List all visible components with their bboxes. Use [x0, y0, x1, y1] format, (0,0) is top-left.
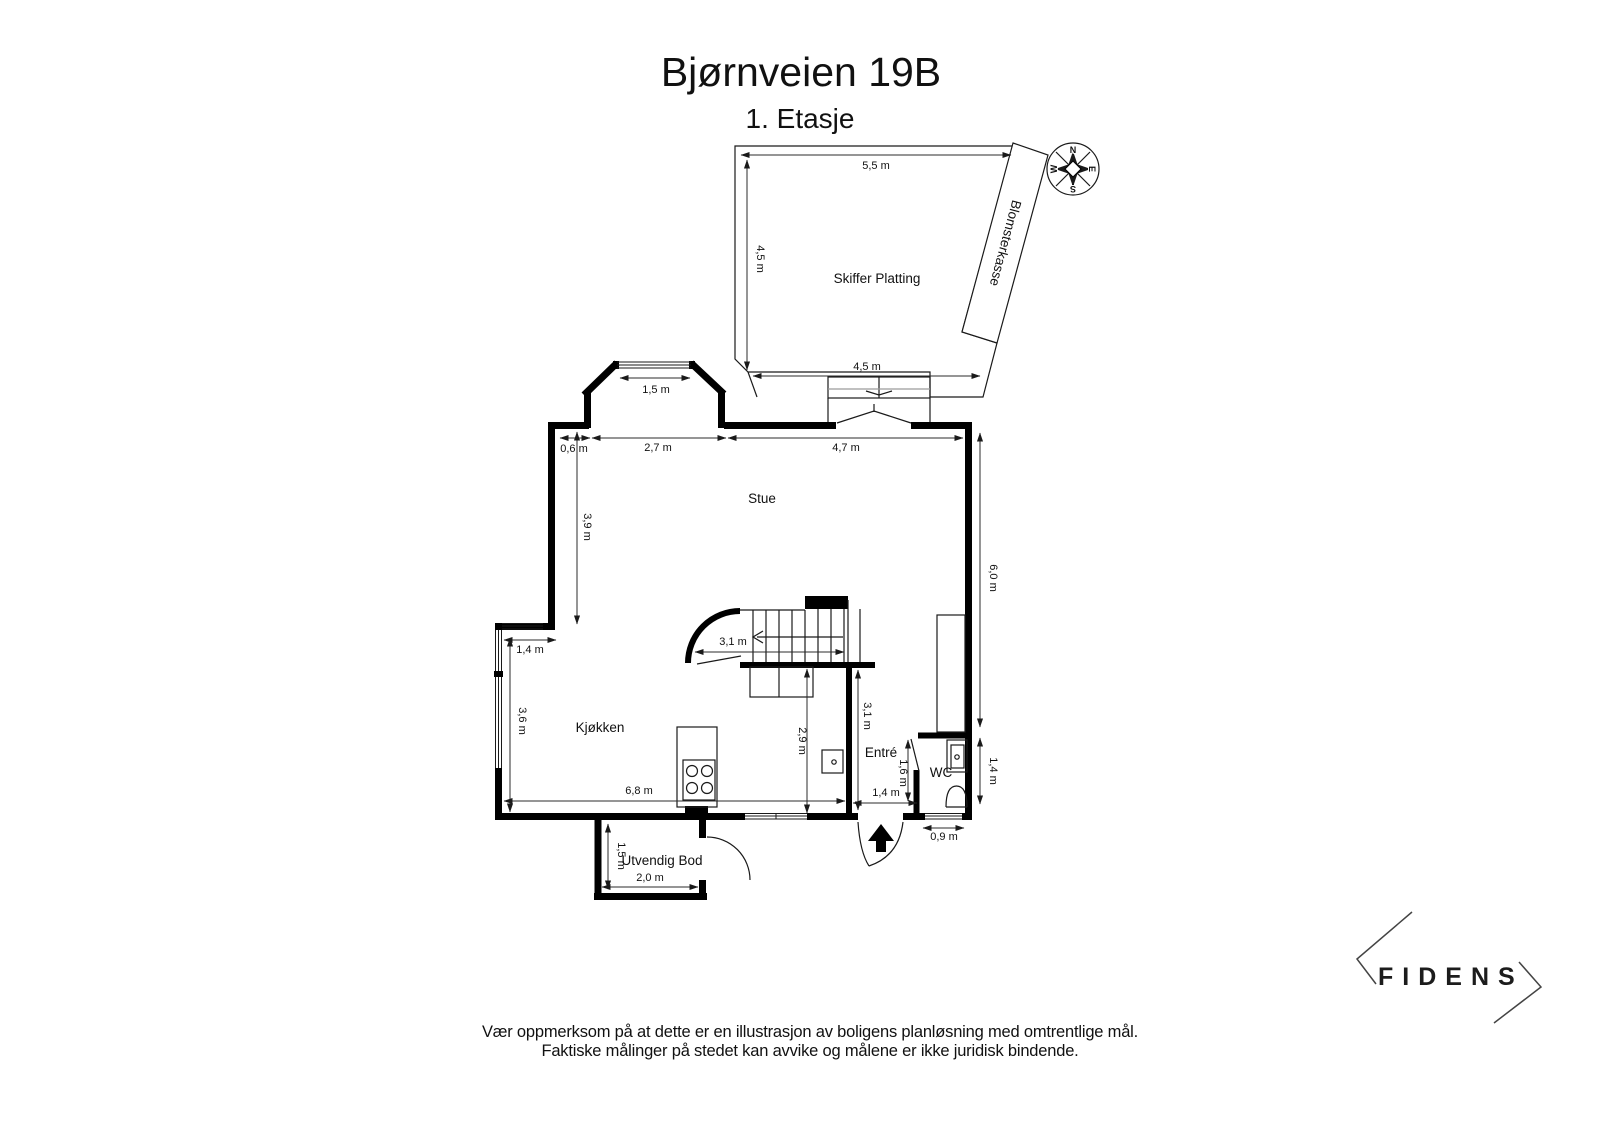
kitchen-cabinet — [822, 750, 843, 773]
dim-stue-left-height: 3,9 m — [581, 513, 593, 541]
stair-landing — [805, 596, 848, 609]
dim-kitchen-left-height: 3,6 m — [516, 707, 528, 735]
dim-entre-wc-gap: 1,6 m — [897, 759, 909, 787]
room-label-bod: Utvendig Bod — [621, 853, 702, 868]
disclaimer-line-1: Vær oppmerksom på at dette er en illustr… — [482, 1023, 1138, 1041]
compass-west: W — [1049, 164, 1059, 173]
dim-entre-inner-height: 2,9 m — [796, 727, 808, 755]
room-label-stue: Stue — [748, 491, 776, 506]
dim-wc-window: 0,9 m — [930, 831, 958, 843]
dim-kitchen-width: 6,8 m — [625, 785, 653, 797]
flower-box: Blomsterkasse — [962, 143, 1048, 343]
exterior-walls — [495, 361, 972, 820]
floorplan-canvas: Bjørnveien 19B 1. Etasje Blomsterkasse S… — [0, 0, 1600, 1131]
wc-toilet — [946, 786, 967, 807]
dim-platting-left: 4,5 m — [754, 245, 766, 273]
entrance-door — [858, 822, 903, 866]
kitchen-left-window — [494, 630, 503, 768]
compass-north: N — [1070, 145, 1077, 155]
room-label-wc: WC — [930, 765, 953, 780]
fidens-logo: FIDENS — [1357, 912, 1541, 1023]
disclaimer-line-2: Faktiske målinger på stedet kan avvike o… — [541, 1042, 1078, 1060]
dim-bay-window: 1,5 m — [642, 384, 670, 396]
dim-bod-width: 2,0 m — [636, 872, 664, 884]
bay-window — [617, 362, 691, 368]
room-label-kjokken: Kjøkken — [576, 720, 625, 735]
entry-direction-arrow — [868, 824, 894, 852]
dim-kitchen-window: 1,4 m — [516, 644, 544, 656]
wc-window — [925, 814, 962, 820]
dim-right-height: 6,0 m — [987, 564, 999, 592]
dim-wc-height: 1,4 m — [987, 757, 999, 785]
terrace-label: Skiffer Platting — [834, 271, 921, 286]
dim-stue-offset: 0,6 m — [560, 443, 588, 455]
bottom-window — [745, 813, 807, 820]
page-subtitle: 1. Etasje — [746, 103, 855, 134]
page-title: Bjørnveien 19B — [661, 49, 941, 95]
kitchen-stove — [677, 727, 717, 807]
compass-east: E — [1087, 166, 1097, 172]
room-label-entre: Entré — [865, 745, 897, 760]
interior-walls — [685, 662, 965, 820]
floorplan-page: Bjørnveien 19B 1. Etasje Blomsterkasse S… — [0, 0, 1600, 1131]
wc-door — [911, 739, 919, 771]
dim-platting-bottom: 4,5 m — [853, 361, 881, 373]
dim-platting-top: 5,5 m — [862, 160, 890, 172]
dim-bod-height: 1,5 m — [615, 842, 627, 870]
terrace-step — [828, 377, 930, 422]
dim-stue-top-right: 4,7 m — [832, 442, 860, 454]
terrace-door-swing — [837, 404, 911, 423]
compass-south: S — [1070, 184, 1076, 194]
wall-niche — [937, 615, 965, 732]
compass-rose: N E S W — [1047, 143, 1099, 195]
logo-text: FIDENS — [1378, 963, 1524, 991]
dim-stair-width: 3,1 m — [719, 636, 747, 648]
dim-entre-height: 3,1 m — [861, 702, 873, 730]
staircase — [688, 596, 860, 697]
dim-entre-door-width: 1,4 m — [872, 787, 900, 799]
dim-stue-top-left: 2,7 m — [644, 442, 672, 454]
